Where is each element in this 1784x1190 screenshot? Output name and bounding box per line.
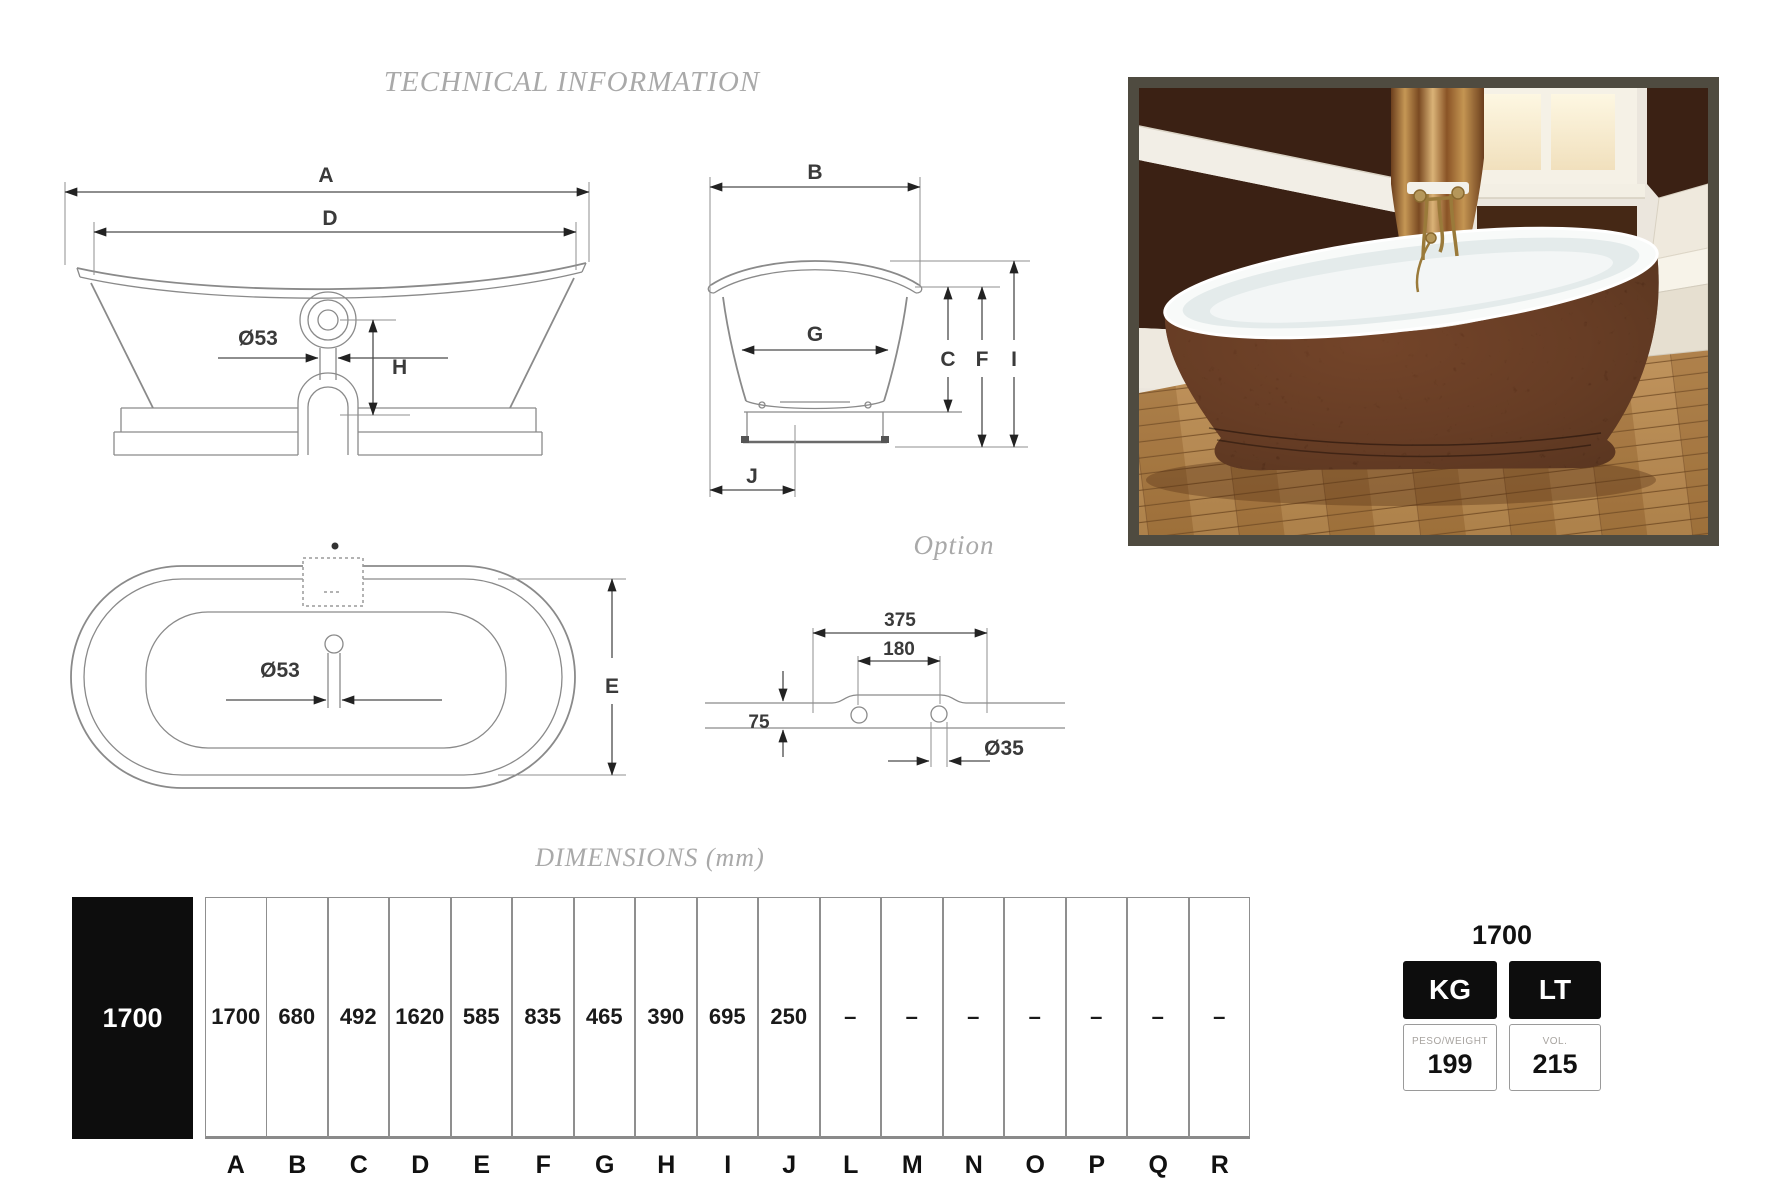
label-G: G [807,323,823,346]
volume-label: VOL. [1543,1036,1568,1047]
dim-letter-E: E [473,1151,490,1180]
dim-value-N: – [943,897,1005,1139]
label-H: H [392,356,407,379]
dim-letter-H: H [657,1151,675,1180]
label-75: 75 [748,712,770,733]
dim-column-M: –M [882,897,944,1180]
label-180: 180 [883,639,915,660]
dim-letter-L: L [843,1151,858,1180]
dim-column-I: 695I [697,897,759,1180]
dim-letter-G: G [595,1151,614,1180]
dim-value-M: – [881,897,943,1139]
weight-label: PESO/WEIGHT [1412,1036,1488,1047]
optional-tap-deck-dashed [303,558,363,606]
dim-value-O: – [1004,897,1066,1139]
top-drain-circle [325,635,343,653]
bathtub-photo-illustration [1139,88,1708,535]
dim-column-G: 465G [574,897,636,1180]
dim-column-J: 250J [759,897,821,1180]
weight-value-box: PESO/WEIGHT 199 [1403,1024,1497,1091]
dim-letter-P: P [1088,1151,1105,1180]
option-label: Option [884,530,1024,561]
top-drain-pipe [328,653,340,708]
dim-value-B: 680 [266,897,328,1139]
dim-letter-R: R [1211,1151,1229,1180]
dim-value-L: – [820,897,882,1139]
label-C: C [940,348,955,371]
dimensions-columns: 1700A680B492C1620D585E835F465G390H695I25… [205,897,1251,1180]
dim-value-P: – [1066,897,1128,1139]
dim-letter-M: M [902,1151,923,1180]
label-I: I [1011,348,1017,371]
dim-value-Q: – [1127,897,1189,1139]
top-inner-oval [84,579,562,775]
dim-value-J: 250 [758,897,820,1139]
weight-value: 199 [1427,1049,1472,1080]
dim-column-H: 390H [636,897,698,1180]
dim-letter-A: A [227,1151,245,1180]
side-body-sides [723,297,907,401]
photo-window-pane [1477,94,1541,170]
dim-letter-J: J [782,1151,796,1180]
dim-letter-N: N [965,1151,983,1180]
label-F: F [976,348,989,371]
dim-column-L: –L [820,897,882,1180]
option-tap-hole-right [931,706,947,722]
side-rim-inner [714,270,916,293]
front-drain-pipe [320,348,336,380]
dim-value-G: 465 [574,897,636,1139]
top-basin [146,612,506,748]
dim-column-N: –N [943,897,1005,1180]
label-A: A [318,164,333,187]
label-E: E [605,675,619,698]
dim-column-C: 492C [328,897,390,1180]
dim-column-E: 585E [451,897,513,1180]
label-drain-top: Ø53 [260,659,300,682]
dim-value-I: 695 [697,897,759,1139]
dimensions-table-title: DIMENSIONS (mm) [400,843,900,873]
front-arch-inner [308,387,348,455]
volume-value: 215 [1532,1049,1577,1080]
label-D: D [322,207,337,230]
dimensions-table: 1700 1700A680B492C1620D585E835F465G390H6… [72,897,1251,1180]
spec-panel: 1700 KG LT PESO/WEIGHT 199 VOL. 215 [1403,920,1601,1091]
dim-value-A: 1700 [205,897,267,1139]
label-375: 375 [884,610,916,631]
dim-value-R: – [1189,897,1251,1139]
dim-letter-D: D [411,1151,429,1180]
dim-column-Q: –Q [1128,897,1190,1180]
dim-column-R: –R [1189,897,1251,1180]
option-detail-drawing: 375 180 75 Ø35 [660,585,1080,790]
label-drain-front: Ø53 [238,327,278,350]
option-tap-hole-left [851,707,867,723]
dim-letter-B: B [288,1151,306,1180]
dim-column-O: –O [1005,897,1067,1180]
weight-unit-box: KG [1403,961,1497,1019]
top-view-drawing: Ø53 E [58,462,638,792]
dim-column-P: –P [1066,897,1128,1180]
dim-value-H: 390 [635,897,697,1139]
dim-column-F: 835F [513,897,575,1180]
product-photo [1128,77,1719,546]
dim-value-E: 585 [451,897,513,1139]
dim-letter-F: F [536,1151,551,1180]
dim-value-D: 1620 [389,897,451,1139]
dim-value-C: 492 [328,897,390,1139]
label-B: B [807,161,822,184]
option-marker-dot [332,543,339,550]
option-rim-profile-top [705,695,1065,703]
front-plinth [114,408,542,455]
side-rim-outer [711,261,919,285]
dim-letter-C: C [350,1151,368,1180]
volume-value-box: VOL. 215 [1509,1024,1601,1091]
label-hole-diameter: Ø35 [984,737,1024,760]
size-row-label: 1700 [72,897,193,1139]
dim-letter-O: O [1026,1151,1045,1180]
volume-unit-box: LT [1509,961,1601,1019]
dim-letter-Q: Q [1149,1151,1168,1180]
front-rim-inner [80,272,582,298]
page-title: TECHNICAL INFORMATION [322,66,822,99]
dim-column-A: 1700A [205,897,267,1180]
photo-wall-panel-right [1647,88,1708,198]
dim-column-B: 680B [267,897,329,1180]
side-view-drawing: B G C F I J [610,135,1060,510]
spec-size-label: 1700 [1403,920,1601,951]
dim-column-D: 1620D [390,897,452,1180]
front-view-drawing: A D Ø53 H [58,135,598,460]
label-J: J [746,465,758,488]
front-arch-outer [298,373,358,455]
dim-value-F: 835 [512,897,574,1139]
dim-letter-I: I [724,1151,731,1180]
